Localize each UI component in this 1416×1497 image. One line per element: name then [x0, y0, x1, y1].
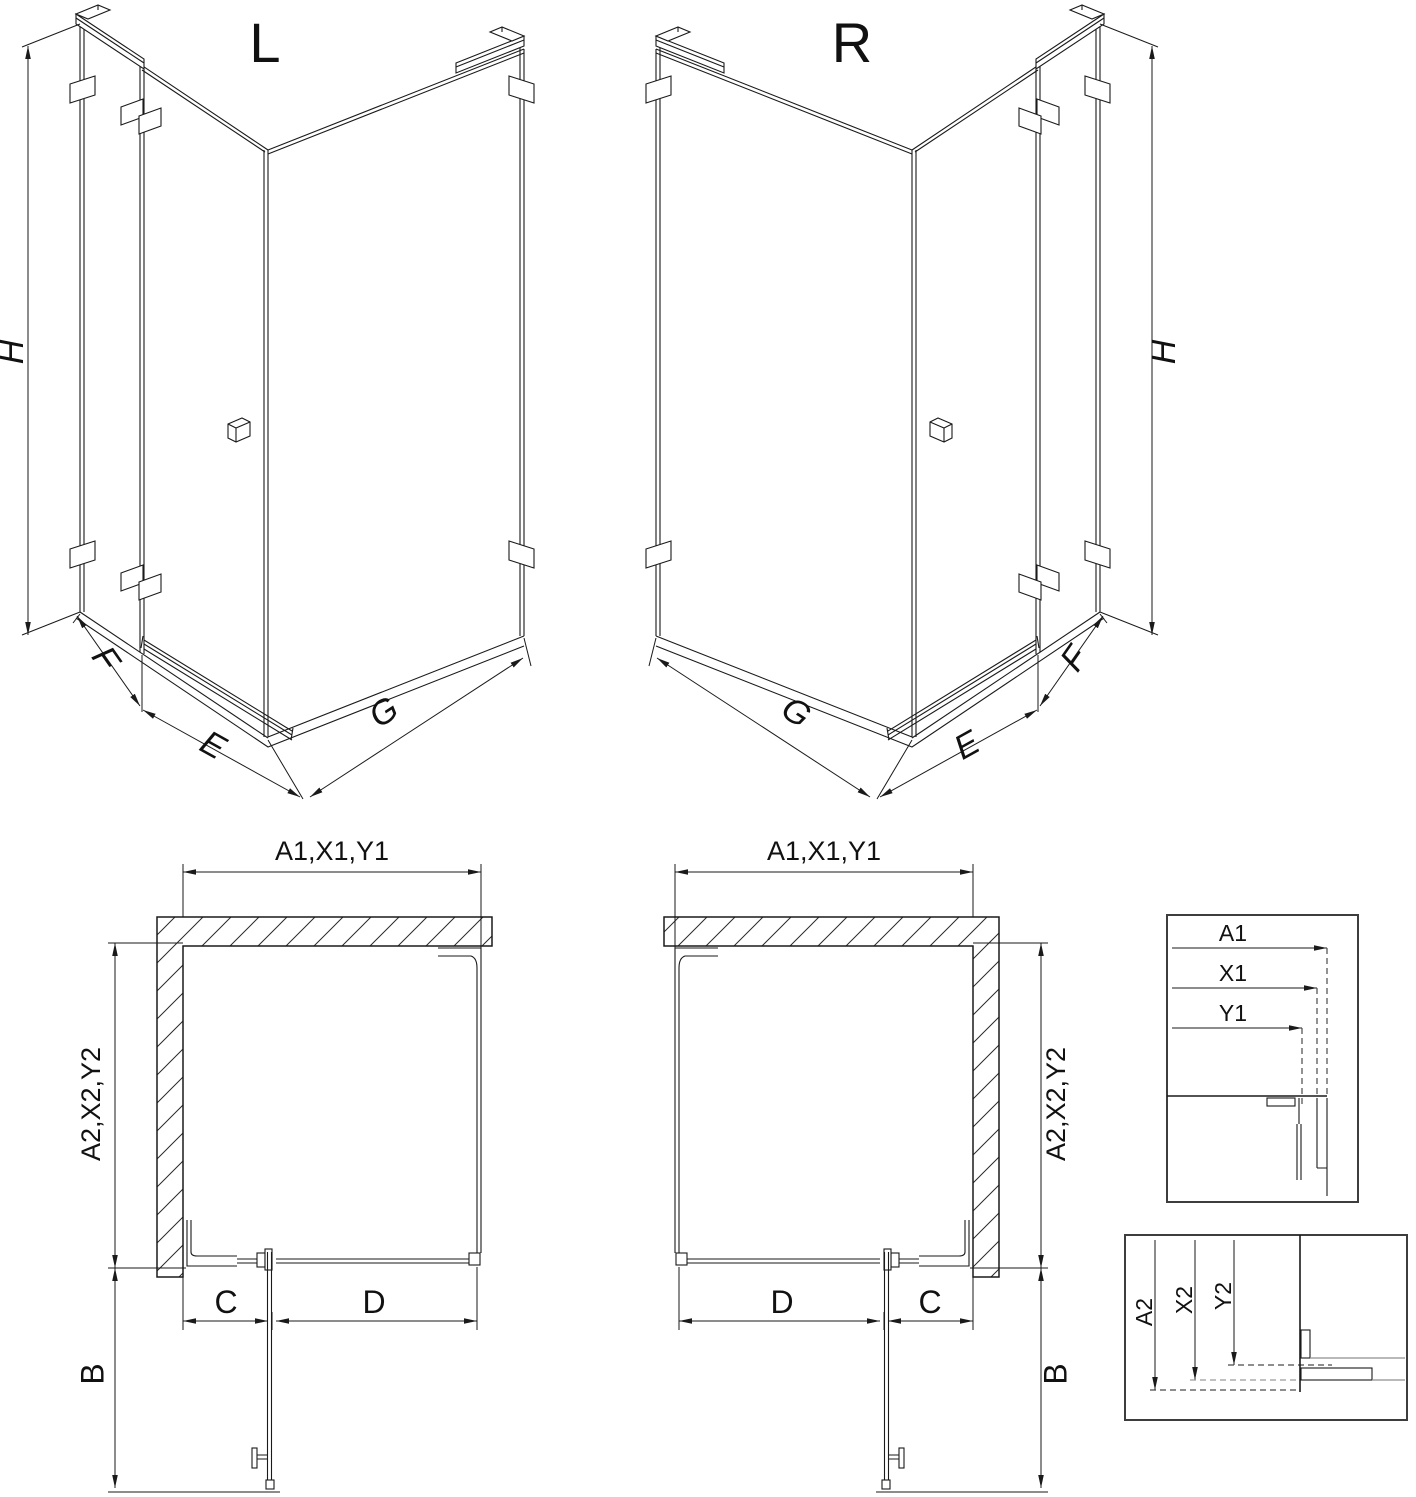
plan-right-c-label: C	[918, 1284, 941, 1320]
shower-enclosure-technical-drawing: L R H H F E G F E G A1,X1,Y1 A2,X2,Y2 B …	[0, 0, 1416, 1497]
detail-x1-label: X1	[1219, 960, 1247, 986]
detail-box-a2	[1125, 1235, 1407, 1420]
plan-left-b-label: B	[74, 1363, 110, 1384]
detail-a2-label: A2	[1131, 1298, 1157, 1326]
dim-label-height-left: H	[0, 339, 31, 364]
dim-label-side-right: G	[775, 689, 818, 735]
plan-left-depth-label: A2,X2,Y2	[76, 1047, 106, 1161]
plan-left-walls	[157, 917, 492, 1277]
plan-right-depth-label: A2,X2,Y2	[1041, 1047, 1071, 1161]
dim-label-door-left: E	[194, 723, 233, 767]
iso-drawing-right	[646, 5, 1158, 799]
detail-box-a1	[1167, 915, 1358, 1202]
detail-y2-label: Y2	[1210, 1282, 1236, 1310]
dim-label-return-right: F	[1053, 638, 1097, 679]
detail-a1-label: A1	[1219, 920, 1247, 946]
plan-left-c-label: C	[214, 1284, 237, 1320]
plan-right-d-label: D	[770, 1284, 793, 1320]
detail-x2-label: X2	[1171, 1286, 1197, 1314]
dim-label-height-right: H	[1145, 339, 1183, 364]
iso-left-view-label: L	[249, 11, 280, 74]
plan-left-width-label: A1,X1,Y1	[275, 836, 389, 866]
drawing-canvas: L R H H F E G F E G A1,X1,Y1 A2,X2,Y2 B …	[0, 0, 1416, 1497]
dim-label-return-left: F	[84, 639, 128, 680]
plan-right-width-label: A1,X1,Y1	[767, 836, 881, 866]
iso-drawing-left	[22, 5, 534, 799]
iso-right-view-label: R	[832, 11, 872, 74]
dim-label-door-right: E	[948, 723, 987, 767]
plan-right-walls	[664, 917, 999, 1277]
plan-left-d-label: D	[362, 1284, 385, 1320]
dim-label-side-left: G	[362, 689, 405, 735]
plan-right-b-label: B	[1037, 1363, 1073, 1384]
labels: L R H H F E G F E G A1,X1,Y1 A2,X2,Y2 B …	[0, 11, 1247, 1385]
detail-y1-label: Y1	[1219, 1000, 1247, 1026]
